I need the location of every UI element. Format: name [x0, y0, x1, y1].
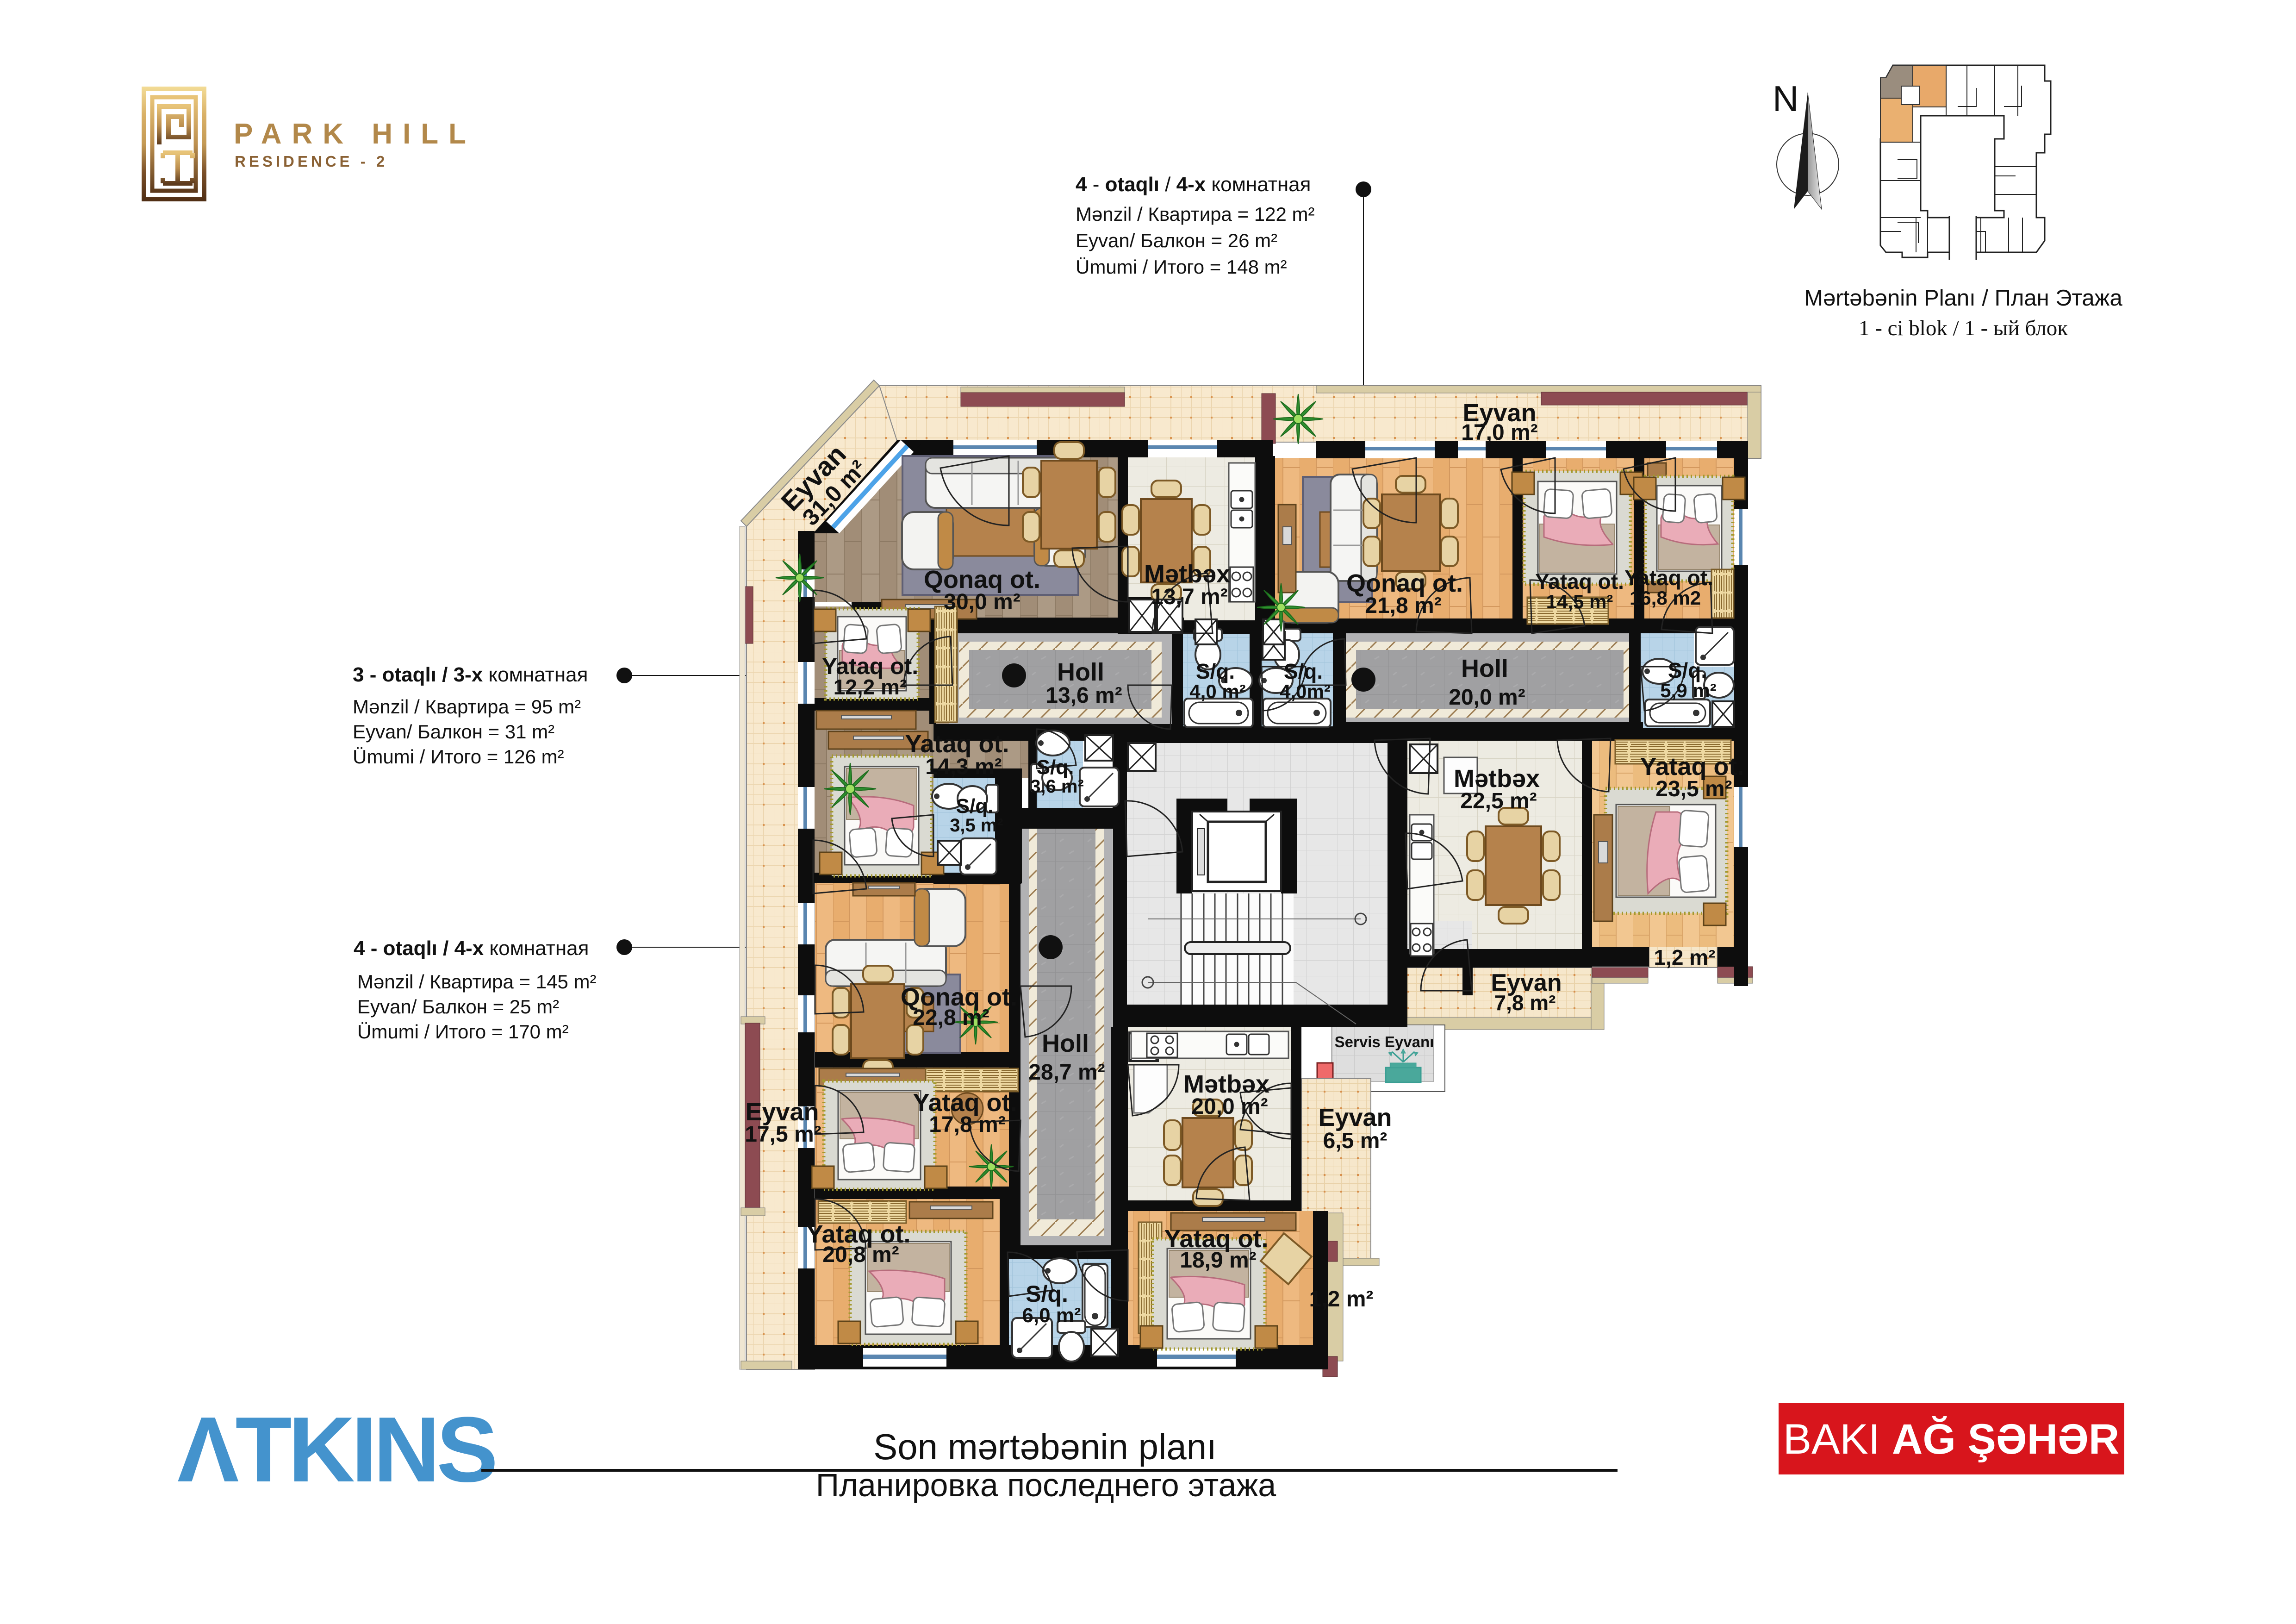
- svg-text:28,7 m²: 28,7 m²: [1028, 1060, 1105, 1085]
- svg-text:22,8 m²: 22,8 m²: [913, 1006, 989, 1030]
- svg-text:23,5 m²: 23,5 m²: [1655, 777, 1732, 801]
- svg-text:Mərtəbənin Planı / План Этаж: Mərtəbənin Planı / План Этажа: [1804, 286, 2122, 311]
- svg-text:S/q.: S/q.: [1037, 756, 1074, 779]
- svg-text:4 - otaqlı / 4-x комнатная: 4 - otaqlı / 4-x комнатная: [1076, 173, 1311, 196]
- svg-text:N: N: [1773, 78, 1798, 119]
- svg-text:17,8 m²: 17,8 m²: [929, 1112, 1005, 1137]
- svg-text:21,8 m²: 21,8 m²: [1365, 593, 1441, 618]
- svg-text:Holl: Holl: [1057, 658, 1104, 686]
- svg-text:Yataq ot.: Yataq ot.: [1624, 566, 1713, 590]
- svg-text:18,9 m²: 18,9 m²: [1180, 1248, 1256, 1273]
- svg-text:Eyvan: Eyvan: [745, 1098, 819, 1126]
- svg-text:Mətbəx: Mətbəx: [1144, 560, 1230, 588]
- svg-text:13,7 m²: 13,7 m²: [1151, 585, 1227, 609]
- svg-text:3,6 m²: 3,6 m²: [1030, 776, 1084, 797]
- svg-text:3 - otaqlı / 3-х комнатная: 3 - otaqlı / 3-х комнатная: [353, 663, 588, 686]
- svg-text:Yataq ot.: Yataq ot.: [1535, 569, 1624, 593]
- svg-text:Son mərtəbənin planı: Son mərtəbənin planı: [873, 1426, 1217, 1467]
- svg-text:RESIDENCE - 2: RESIDENCE - 2: [235, 153, 388, 170]
- svg-text:20,8 m²: 20,8 m²: [822, 1243, 899, 1267]
- svg-text:14,5 m²: 14,5 m²: [1546, 591, 1613, 612]
- svg-text:Eyvan: Eyvan: [1318, 1104, 1392, 1131]
- svg-text:Ümumi / Итого = 170 m²: Ümumi / Итого = 170 m²: [357, 1021, 569, 1043]
- svg-text:Eyvan/ Балкон = 31 m²: Eyvan/ Балкон = 31 m²: [353, 721, 554, 743]
- svg-text:Servis Eyvanı: Servis Eyvanı: [1335, 1033, 1434, 1050]
- svg-text:Holl: Holl: [1042, 1030, 1089, 1057]
- svg-text:1,2 m²: 1,2 m²: [1654, 945, 1716, 969]
- svg-text:7,8 m²: 7,8 m²: [1494, 991, 1556, 1015]
- svg-text:BAKI AĞ ŞƏHƏR: BAKI AĞ ŞƏHƏR: [1783, 1416, 2120, 1463]
- svg-text:Eyvan/ Балкон = 25 m²: Eyvan/ Балкон = 25 m²: [357, 996, 559, 1018]
- svg-text:5,9 m²: 5,9 m²: [1660, 680, 1716, 701]
- svg-text:S/q.: S/q.: [1668, 658, 1707, 682]
- svg-text:20,0 m²: 20,0 m²: [1449, 685, 1525, 710]
- svg-text:4 - otaqlı / 4-x комнатная: 4 - otaqlı / 4-x комнатная: [354, 937, 589, 960]
- svg-text:20,0 m²: 20,0 m²: [1191, 1094, 1268, 1119]
- svg-text:17,5 m²: 17,5 m²: [745, 1122, 821, 1147]
- svg-text:Mənzil / Квартира = 145 m²: Mənzil / Квартира = 145 m²: [357, 971, 596, 993]
- svg-text:S/q.: S/q.: [1284, 659, 1323, 683]
- svg-text:1 - ci blok / 1 - ый блок: 1 - ci blok / 1 - ый блок: [1859, 316, 2068, 340]
- svg-text:PARK HILL: PARK HILL: [234, 118, 476, 150]
- svg-text:14,3 m²: 14,3 m²: [925, 755, 1002, 779]
- svg-text:17,0 m²: 17,0 m²: [1461, 420, 1537, 445]
- svg-text:Eyvan/ Балкон = 26 m²: Eyvan/ Балкон = 26 m²: [1076, 230, 1277, 251]
- svg-text:ΛTKINS: ΛTKINS: [177, 1398, 495, 1501]
- svg-text:Qonaq ot.: Qonaq ot.: [1346, 569, 1463, 597]
- svg-text:4,0m²: 4,0m²: [1280, 681, 1331, 702]
- svg-text:S/q.: S/q.: [1026, 1281, 1068, 1307]
- svg-text:6,0 m²: 6,0 m²: [1022, 1304, 1081, 1327]
- svg-text:Holl: Holl: [1461, 655, 1508, 682]
- svg-text:4,0 m²: 4,0 m²: [1189, 681, 1245, 702]
- svg-text:22,5 m²: 22,5 m²: [1460, 789, 1537, 813]
- svg-text:3,5 m²: 3,5 m²: [950, 815, 1003, 836]
- svg-text:Ümumi / Итого = 148 m²: Ümumi / Итого = 148 m²: [1076, 256, 1287, 278]
- svg-text:Qonaq ot.: Qonaq ot.: [924, 566, 1040, 593]
- svg-text:S/q.: S/q.: [1196, 659, 1235, 683]
- svg-text:12,2 m²: 12,2 m²: [834, 675, 907, 699]
- svg-text:13,6 m²: 13,6 m²: [1045, 683, 1122, 708]
- svg-text:Планировка последнего этажа: Планировка последнего этажа: [816, 1467, 1276, 1503]
- svg-text:1,2 m²: 1,2 m²: [1309, 1287, 1374, 1312]
- svg-text:16,8 m2: 16,8 m2: [1630, 587, 1701, 609]
- svg-text:30,0 m²: 30,0 m²: [944, 590, 1020, 614]
- svg-text:S/q.: S/q.: [956, 795, 994, 818]
- svg-text:6,5 m²: 6,5 m²: [1323, 1129, 1388, 1153]
- svg-text:Mənzil / Квартира = 122 m²: Mənzil / Квартира = 122 m²: [1076, 203, 1314, 225]
- svg-text:Yataq ot.: Yataq ot.: [905, 730, 1009, 758]
- svg-text:Mətbəx: Mətbəx: [1454, 765, 1540, 793]
- svg-text:Mətbəx: Mətbəx: [1183, 1070, 1269, 1098]
- svg-text:Ümumi / Итого = 126 m²: Ümumi / Итого = 126 m²: [353, 746, 564, 768]
- svg-text:Yataq ot.: Yataq ot.: [1640, 753, 1744, 781]
- svg-text:Mənzil / Квартира = 95 m²: Mənzil / Квартира = 95 m²: [353, 696, 581, 718]
